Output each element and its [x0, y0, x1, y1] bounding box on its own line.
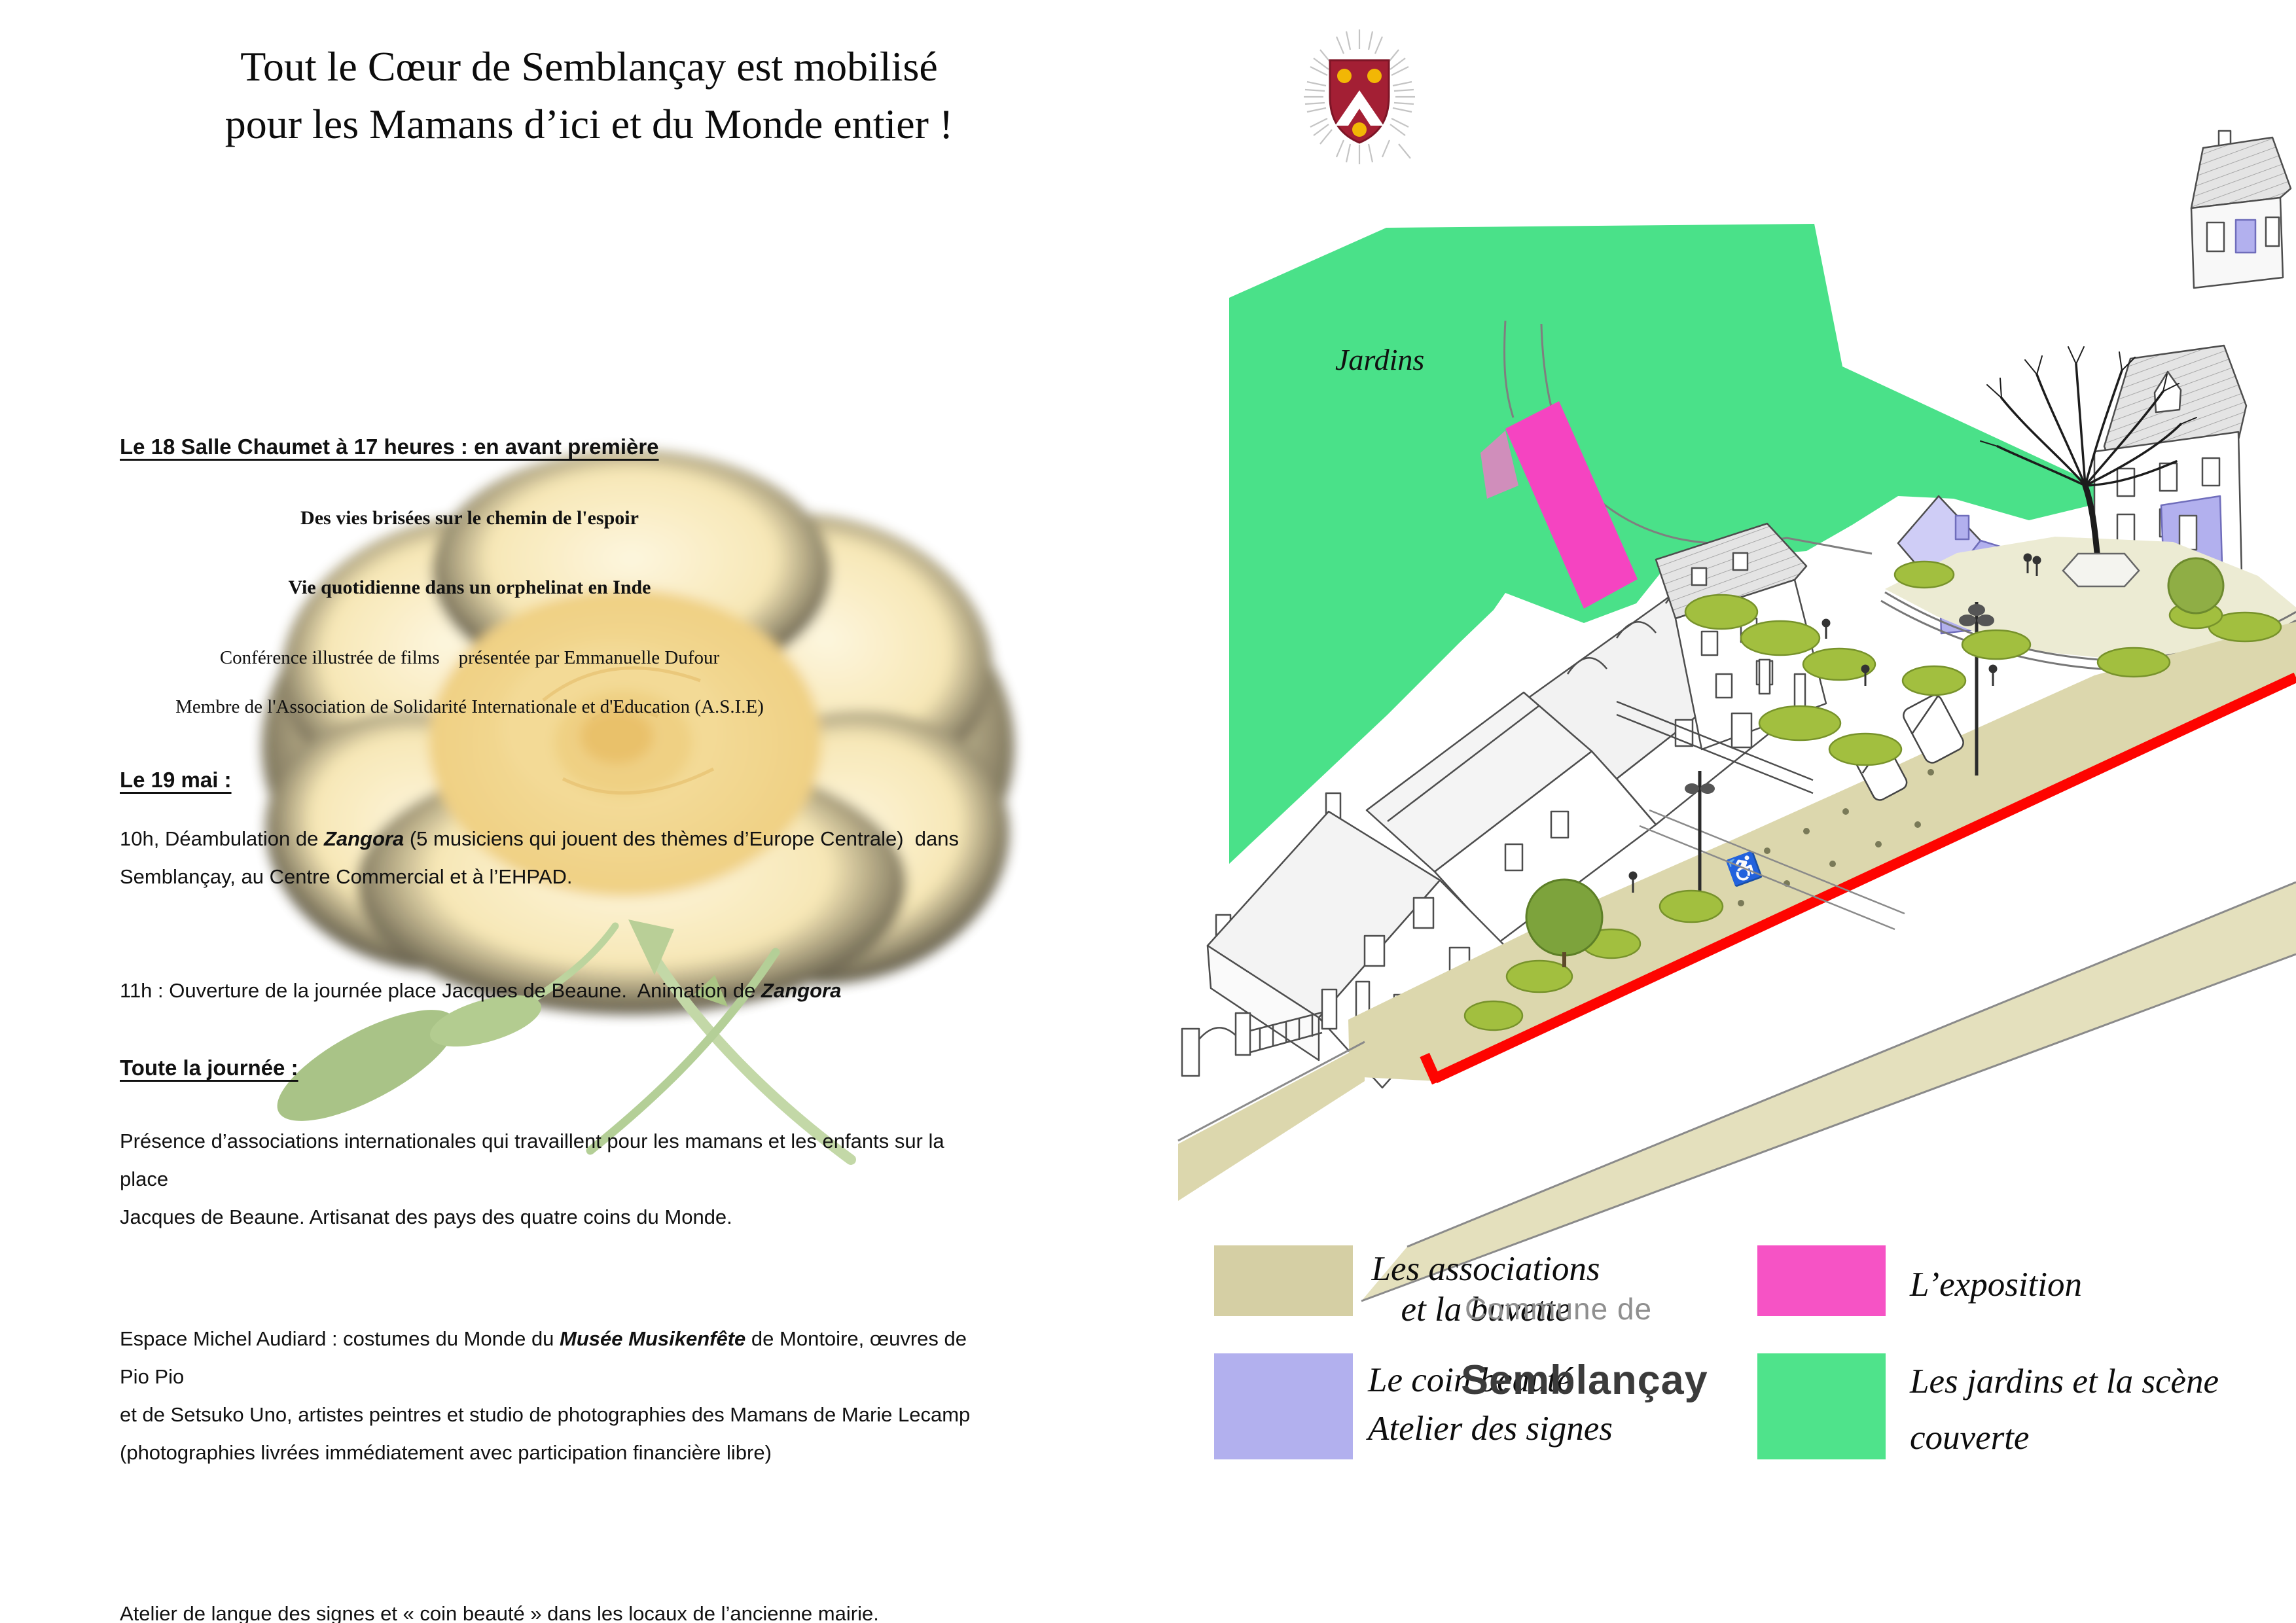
- map-label-jardins: Jardins: [1335, 343, 1424, 376]
- conference-line: Conférence illustrée de films présentée …: [121, 647, 818, 669]
- paragraph-atelier-signes: Atelier de langue des signes et « coin b…: [120, 1595, 997, 1623]
- film-title-1: Des vies brisées sur le chemin de l'espo…: [121, 507, 818, 529]
- rose-image: [238, 450, 1039, 1160]
- logo-text-semblancay: Semblançay: [1461, 1357, 2296, 1404]
- member-line: Membre de l'Association de Solidarité In…: [92, 696, 848, 718]
- heading-toute-journee: Toute la journée :: [120, 1056, 2296, 1080]
- paragraph-ouverture: 11h : Ouverture de la journée place Jacq…: [120, 972, 997, 1010]
- flyer-page: ♿: [0, 0, 2296, 1623]
- legend-swatch-associations: [1214, 1245, 1353, 1316]
- title-line1: Tout le Cœur de Semblançay est mobilisé: [240, 43, 938, 90]
- heading-premiere: Le 18 Salle Chaumet à 17 heures : en ava…: [120, 435, 2296, 459]
- legend-swatch-coin-beaute: [1214, 1353, 1353, 1459]
- commune-logo-crest: [1304, 29, 1415, 164]
- title-line2: pour les Mamans d’ici et du Monde entier…: [225, 101, 954, 147]
- page-title: Tout le Cœur de Semblançay est mobilisé …: [79, 38, 1100, 154]
- map-illustration: ♿: [1178, 131, 2296, 1301]
- paragraph-deambulation: 10h, Déambulation de Zangora (5 musicien…: [120, 820, 997, 896]
- film-title-2: Vie quotidienne dans un orphelinat en In…: [121, 577, 818, 599]
- paragraph-espace-audiard: Espace Michel Audiard : costumes du Mond…: [120, 1320, 997, 1472]
- logo-text-commune: Commune de: [1465, 1291, 2296, 1327]
- heading-19-mai: Le 19 mai :: [120, 768, 2296, 793]
- paragraph-presence: Présence d’associations internationales …: [120, 1122, 997, 1236]
